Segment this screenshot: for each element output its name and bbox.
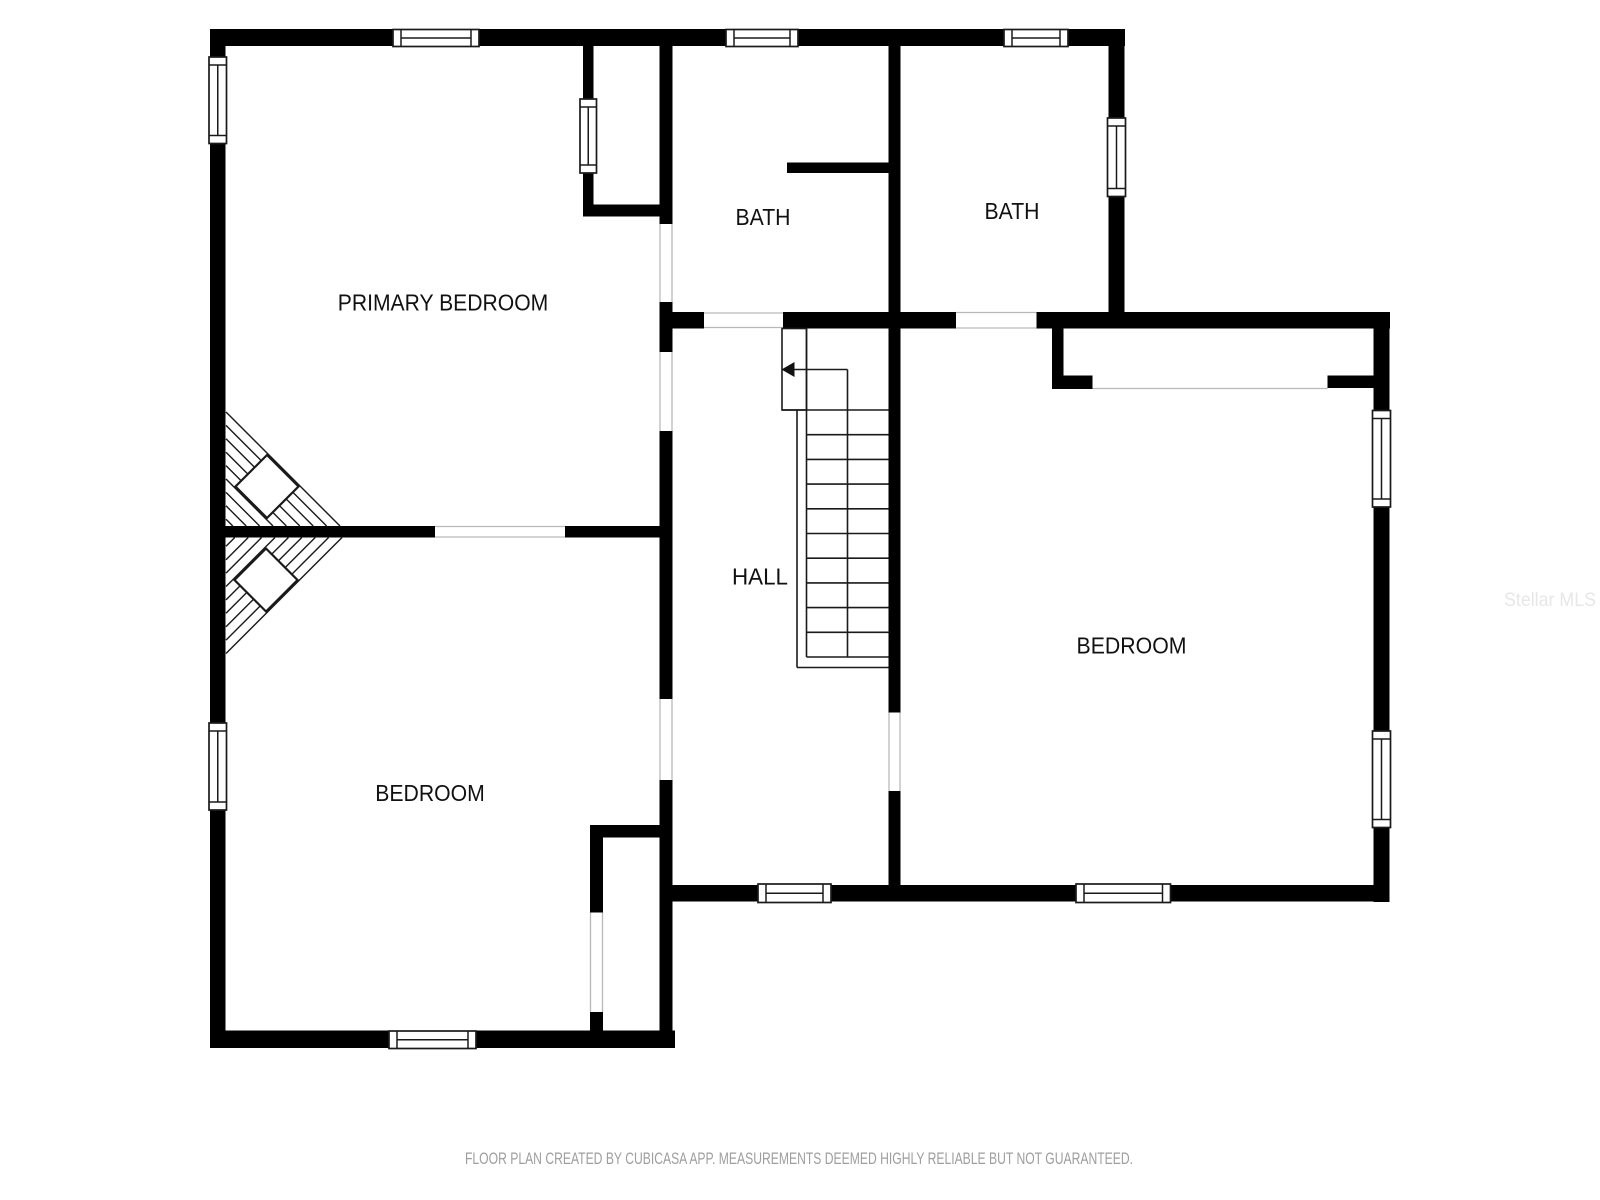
svg-text:BEDROOM: BEDROOM — [375, 780, 485, 806]
svg-text:BATH: BATH — [985, 198, 1040, 224]
svg-text:Stellar MLS: Stellar MLS — [1504, 589, 1596, 611]
svg-text:FLOOR PLAN CREATED BY CUBICASA: FLOOR PLAN CREATED BY CUBICASA APP. MEAS… — [465, 1150, 1133, 1168]
svg-text:PRIMARY BEDROOM: PRIMARY BEDROOM — [338, 290, 549, 316]
svg-text:BATH: BATH — [736, 204, 791, 230]
svg-text:HALL: HALL — [732, 564, 788, 590]
svg-text:BEDROOM: BEDROOM — [1077, 633, 1187, 659]
